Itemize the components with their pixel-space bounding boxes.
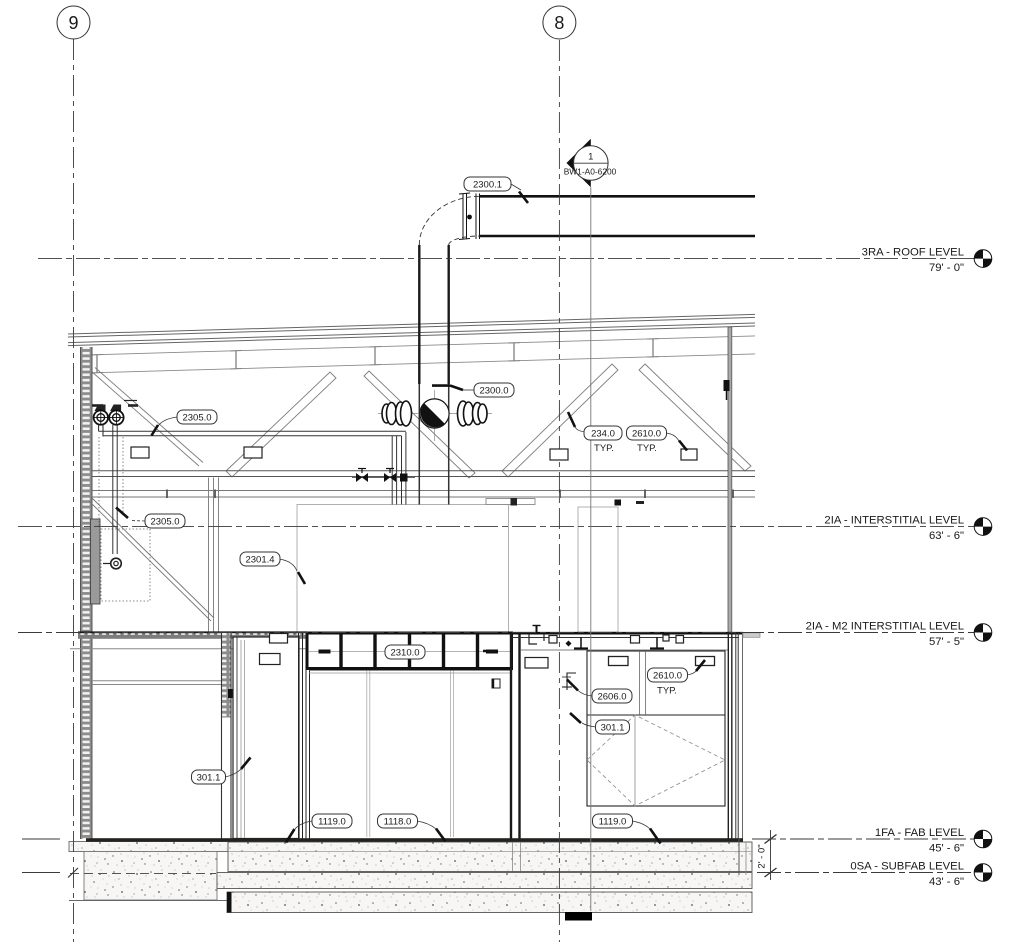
svg-text:1118.0: 1118.0 — [384, 817, 412, 828]
svg-text:2300.1: 2300.1 — [473, 180, 502, 191]
svg-text:1FA - FAB LEVEL: 1FA - FAB LEVEL — [875, 827, 964, 839]
svg-text:63' - 6": 63' - 6" — [929, 530, 964, 542]
svg-text:301.1: 301.1 — [197, 773, 221, 784]
svg-text:0SA - SUBFAB LEVEL: 0SA - SUBFAB LEVEL — [850, 861, 964, 873]
svg-text:TYP.: TYP. — [657, 686, 677, 697]
svg-text:2IA - M2 INTERSTITIAL LEVEL: 2IA - M2 INTERSTITIAL LEVEL — [806, 621, 964, 633]
svg-text:8: 8 — [554, 13, 564, 33]
svg-text:2301.4: 2301.4 — [245, 555, 274, 566]
svg-text:BW1-A0-6200: BW1-A0-6200 — [564, 167, 617, 177]
svg-text:2310.0: 2310.0 — [390, 648, 419, 659]
svg-text:3RA - ROOF LEVEL: 3RA - ROOF LEVEL — [862, 247, 964, 259]
svg-text:1119.0: 1119.0 — [318, 817, 346, 828]
svg-text:2305.0: 2305.0 — [150, 517, 179, 528]
svg-text:43' - 6": 43' - 6" — [929, 876, 964, 888]
svg-text:1119.0: 1119.0 — [599, 817, 627, 828]
svg-text:57' - 5": 57' - 5" — [929, 636, 964, 648]
svg-text:2IA - INTERSTITIAL LEVEL: 2IA - INTERSTITIAL LEVEL — [824, 515, 964, 527]
svg-text:2300.0: 2300.0 — [479, 386, 508, 397]
svg-text:1: 1 — [588, 152, 593, 163]
svg-text:2305.0: 2305.0 — [182, 413, 211, 424]
svg-text:9: 9 — [68, 13, 78, 33]
svg-text:301.1: 301.1 — [601, 723, 625, 734]
svg-text:2610.0: 2610.0 — [632, 429, 661, 440]
svg-text:2' - 0": 2' - 0" — [757, 844, 768, 868]
svg-text:79' - 0": 79' - 0" — [929, 262, 964, 274]
svg-text:2610.0: 2610.0 — [653, 671, 682, 682]
svg-text:45' - 6": 45' - 6" — [929, 843, 964, 855]
svg-text:TYP.: TYP. — [637, 443, 657, 454]
svg-text:2606.0: 2606.0 — [597, 692, 626, 703]
svg-text:234.0: 234.0 — [591, 429, 615, 440]
svg-text:TYP.: TYP. — [594, 443, 614, 454]
